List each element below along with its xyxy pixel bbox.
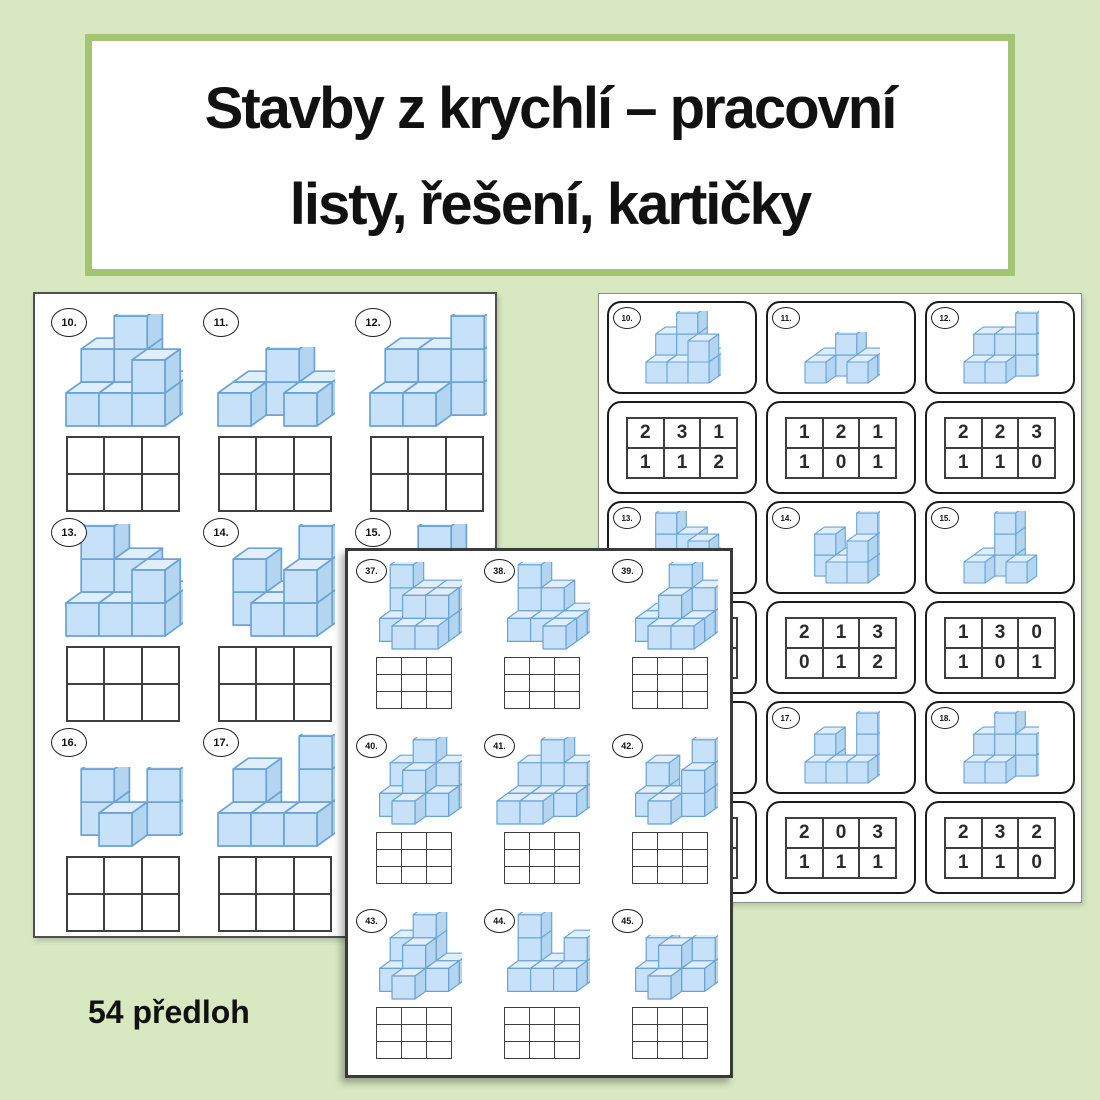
empty-grid [504,832,580,884]
grid-cell [505,658,529,674]
grid-cell: 1 [860,449,895,477]
count-label: 54 předloh [88,994,250,1031]
grid-cell [555,692,579,708]
grid-cell [633,1042,657,1058]
grid-cell [505,692,529,708]
grid-cell [427,1042,451,1058]
item-number-badge: 12. [355,308,391,337]
grid-cell [143,648,178,683]
worksheet-item: 39. [610,557,730,725]
answer-grid-area: 121101 [768,403,914,492]
grid-cell [295,858,330,893]
grid-cell [377,867,401,883]
grid-cell [555,1008,579,1024]
grid-cell [633,692,657,708]
grid-cell [633,675,657,691]
empty-grid [218,856,332,932]
grid-cell [68,858,103,893]
cube-structure-drawing [803,711,880,785]
answer-grid: 231112 [626,417,738,479]
item-number-badge: 10. [51,308,87,337]
item-number-badge: 14. [203,518,239,547]
grid-cell [402,850,426,866]
worksheet-item: 16. [49,726,197,932]
empty-grid [66,436,180,512]
grid-cell [555,658,579,674]
grid-cell: 1 [824,649,859,677]
cube-structure-drawing [623,935,718,1001]
cube-structure-drawing [216,347,335,428]
grid-cell: 0 [787,649,822,677]
grid-cell [220,685,255,720]
title-line-2: listy, řešení, kartičky [92,157,1008,253]
grid-cell: 1 [946,619,981,647]
worksheet-item: 17. [201,726,349,932]
grid-cell [555,675,579,691]
grid-cell [377,1042,401,1058]
grid-cell [447,475,482,510]
empty-grid [632,832,708,884]
grid-cell [372,438,407,473]
worksheet-item: 40. [354,732,474,900]
structure-card: 12. [925,301,1075,394]
empty-grid [504,657,580,709]
worksheet-item: 44. [482,907,602,1075]
worksheet-item: 43. [354,907,474,1075]
grid-cell [409,438,444,473]
grid-cell [143,438,178,473]
grid-cell [427,675,451,691]
item-number-badge: 41. [484,734,515,758]
grid-cell [683,867,707,883]
grid-cell [658,833,682,849]
empty-grid [632,1007,708,1059]
item-number-badge: 42. [612,734,643,758]
grid-cell [658,658,682,674]
grid-cell [555,867,579,883]
empty-grid [632,657,708,709]
answer-card: 130101 [925,601,1075,694]
grid-cell [402,833,426,849]
answer-card: 121101 [766,401,916,494]
grid-cell [220,895,255,930]
grid-cell: 1 [946,849,981,877]
item-number-badge: 18. [931,707,959,729]
grid-cell [530,867,554,883]
grid-cell [257,475,292,510]
structure-card: 11. [766,301,916,394]
answer-grid-area: 130101 [927,603,1073,692]
grid-cell [505,1042,529,1058]
item-number-badge: 45. [612,909,643,933]
item-number-badge: 39. [612,559,643,583]
item-number-badge: 38. [484,559,515,583]
grid-cell: 3 [983,619,1018,647]
worksheet-item: 14. [201,516,349,722]
grid-cell [377,833,401,849]
grid-cell [68,475,103,510]
grid-cell [257,685,292,720]
item-number-badge: 16. [51,728,87,757]
grid-cell: 1 [860,849,895,877]
grid-cell [505,850,529,866]
grid-cell: 2 [983,419,1018,447]
worksheet-item: 10. [49,306,197,512]
cube-structure-drawing [962,711,1039,785]
grid-cell [530,675,554,691]
grid-cell [633,658,657,674]
worksheet-item: 38. [482,557,602,725]
grid-cell [402,1042,426,1058]
cube-structure-drawing [962,311,1039,385]
grid-cell [633,833,657,849]
grid-cell [105,438,140,473]
grid-cell [377,850,401,866]
item-number-badge: 37. [356,559,387,583]
answer-grid-area: 213012 [768,603,914,692]
grid-cell [143,858,178,893]
cube-structure-drawing [64,767,183,848]
grid-cell: 2 [1019,819,1054,847]
item-number-badge: 40. [356,734,387,758]
item-number-badge: 17. [203,728,239,757]
grid-cell [402,1025,426,1041]
promo-image: Stavby z krychlí – pracovní listy, řešen… [0,0,1100,1100]
cube-structure-drawing [644,311,721,385]
grid-cell [530,1025,554,1041]
grid-cell [68,895,103,930]
grid-cell [295,475,330,510]
grid-cell: 1 [628,449,663,477]
grid-cell [143,685,178,720]
grid-cell [683,1025,707,1041]
grid-cell: 3 [1019,419,1054,447]
grid-cell [633,850,657,866]
grid-cell [143,475,178,510]
grid-cell [633,1008,657,1024]
grid-cell [505,867,529,883]
grid-cell [658,692,682,708]
grid-cell: 3 [665,419,700,447]
grid-cell [683,1008,707,1024]
cube-structure-drawing [962,511,1039,585]
grid-cell [402,658,426,674]
grid-cell [257,858,292,893]
item-number-badge: 10. [613,307,641,329]
grid-cell: 2 [628,419,663,447]
grid-cell [409,475,444,510]
grid-cell [427,867,451,883]
item-number-badge: 13. [51,518,87,547]
grid-cell [257,648,292,683]
grid-cell [530,1008,554,1024]
structure-card: 10. [607,301,757,394]
grid-cell: 1 [824,619,859,647]
grid-cell [505,1025,529,1041]
grid-cell [633,867,657,883]
empty-grid [376,1007,452,1059]
item-number-badge: 15. [931,507,959,529]
empty-grid [218,646,332,722]
grid-cell: 2 [787,819,822,847]
grid-cell: 1 [701,419,736,447]
answer-grid: 223110 [944,417,1056,479]
grid-cell [220,648,255,683]
grid-cell [377,675,401,691]
grid-cell: 2 [946,819,981,847]
answer-card: 223110 [925,401,1075,494]
grid-cell [683,1042,707,1058]
empty-grid [376,657,452,709]
empty-grid [66,856,180,932]
grid-cell: 1 [946,649,981,677]
grid-cell [658,1025,682,1041]
worksheet-item: 42. [610,732,730,900]
worksheet-page-front: 37. 38. 39. 40. 41. 42. 43. [345,548,733,1078]
grid-cell [295,648,330,683]
item-number-badge: 12. [931,307,959,329]
grid-cell [295,685,330,720]
answer-grid: 130101 [944,617,1056,679]
answer-grid-area: 223110 [927,403,1073,492]
grid-cell: 0 [1019,619,1054,647]
grid-cell [658,675,682,691]
grid-cell: 2 [701,449,736,477]
grid-cell: 1 [824,849,859,877]
worksheet-item: 37. [354,557,474,725]
grid-cell [372,475,407,510]
answer-grid-area: 203111 [768,803,914,892]
grid-cell: 3 [983,819,1018,847]
grid-cell: 1 [983,449,1018,477]
grid-cell [633,1025,657,1041]
grid-cell [427,1025,451,1041]
grid-cell [295,438,330,473]
grid-cell: 2 [824,419,859,447]
answer-card: 232110 [925,801,1075,894]
structure-card: 15. [925,501,1075,594]
grid-cell [402,867,426,883]
grid-cell: 1 [665,449,700,477]
grid-cell [377,1008,401,1024]
cube-structure-drawing [803,511,880,585]
grid-cell [505,1008,529,1024]
grid-cell [257,438,292,473]
worksheet-item: 12. [353,306,501,512]
grid-cell [105,858,140,893]
grid-cell: 0 [824,449,859,477]
grid-cell [402,1008,426,1024]
grid-cell [530,833,554,849]
grid-cell [295,895,330,930]
answer-grid-area: 231112 [609,403,755,492]
worksheet-item: 13. [49,516,197,722]
worksheet-item: 11. [201,306,349,512]
grid-cell [658,850,682,866]
answer-grid: 232110 [944,817,1056,879]
title-line-1: Stavby z krychlí – pracovní [92,61,1008,157]
grid-cell [683,850,707,866]
empty-grid [370,436,484,512]
grid-cell [220,858,255,893]
grid-cell [427,658,451,674]
grid-cell [683,692,707,708]
structure-card: 17. [766,701,916,794]
grid-cell [658,1042,682,1058]
grid-cell: 1 [860,419,895,447]
item-number-badge: 17. [772,707,800,729]
grid-cell: 1 [787,419,822,447]
grid-cell [105,895,140,930]
empty-grid [218,436,332,512]
grid-cell [658,1008,682,1024]
grid-cell: 3 [860,819,895,847]
grid-cell [68,648,103,683]
grid-cell [555,1025,579,1041]
item-number-badge: 11. [772,307,800,329]
grid-cell [555,833,579,849]
item-number-badge: 15. [355,518,391,547]
grid-cell [220,475,255,510]
grid-cell [220,438,255,473]
grid-cell: 1 [1019,649,1054,677]
grid-cell [427,850,451,866]
grid-cell [505,833,529,849]
grid-cell [68,685,103,720]
item-number-badge: 13. [613,507,641,529]
grid-cell: 2 [860,649,895,677]
grid-cell [257,895,292,930]
grid-cell [143,895,178,930]
answer-card: 203111 [766,801,916,894]
grid-cell [683,833,707,849]
grid-cell: 1 [787,849,822,877]
grid-cell: 0 [1019,449,1054,477]
grid-cell [447,438,482,473]
empty-grid [376,832,452,884]
empty-grid [66,646,180,722]
grid-cell [377,658,401,674]
item-number-badge: 43. [356,909,387,933]
grid-cell [105,648,140,683]
answer-grid: 203111 [785,817,897,879]
grid-cell [402,675,426,691]
item-number-badge: 14. [772,507,800,529]
answer-grid: 121101 [785,417,897,479]
grid-cell: 0 [824,819,859,847]
item-number-badge: 11. [203,308,239,337]
worksheet-item: 45. [610,907,730,1075]
worksheet-item: 41. [482,732,602,900]
title-banner: Stavby z krychlí – pracovní listy, řešen… [85,34,1015,276]
grid-cell [105,685,140,720]
grid-cell [530,692,554,708]
grid-cell [530,850,554,866]
grid-cell: 2 [946,419,981,447]
structure-card: 18. [925,701,1075,794]
grid-cell: 2 [787,619,822,647]
empty-grid [504,1007,580,1059]
grid-cell [427,833,451,849]
grid-cell: 1 [787,449,822,477]
grid-cell [68,438,103,473]
grid-cell [427,1008,451,1024]
grid-cell [505,675,529,691]
answer-card: 213012 [766,601,916,694]
grid-cell [105,475,140,510]
answer-card: 231112 [607,401,757,494]
grid-cell [530,658,554,674]
structure-card: 14. [766,501,916,594]
grid-cell [658,867,682,883]
cube-structure-drawing [803,332,880,385]
grid-cell [377,692,401,708]
grid-cell [555,1042,579,1058]
grid-cell [402,692,426,708]
grid-cell [555,850,579,866]
grid-cell [427,692,451,708]
grid-cell: 0 [983,649,1018,677]
grid-cell: 3 [860,619,895,647]
grid-cell [530,1042,554,1058]
grid-cell [683,675,707,691]
answer-grid-area: 232110 [927,803,1073,892]
grid-cell: 1 [946,449,981,477]
item-number-badge: 44. [484,909,515,933]
grid-cell: 1 [983,849,1018,877]
answer-grid: 213012 [785,617,897,679]
grid-cell [683,658,707,674]
grid-cell: 0 [1019,849,1054,877]
grid-cell [377,1025,401,1041]
